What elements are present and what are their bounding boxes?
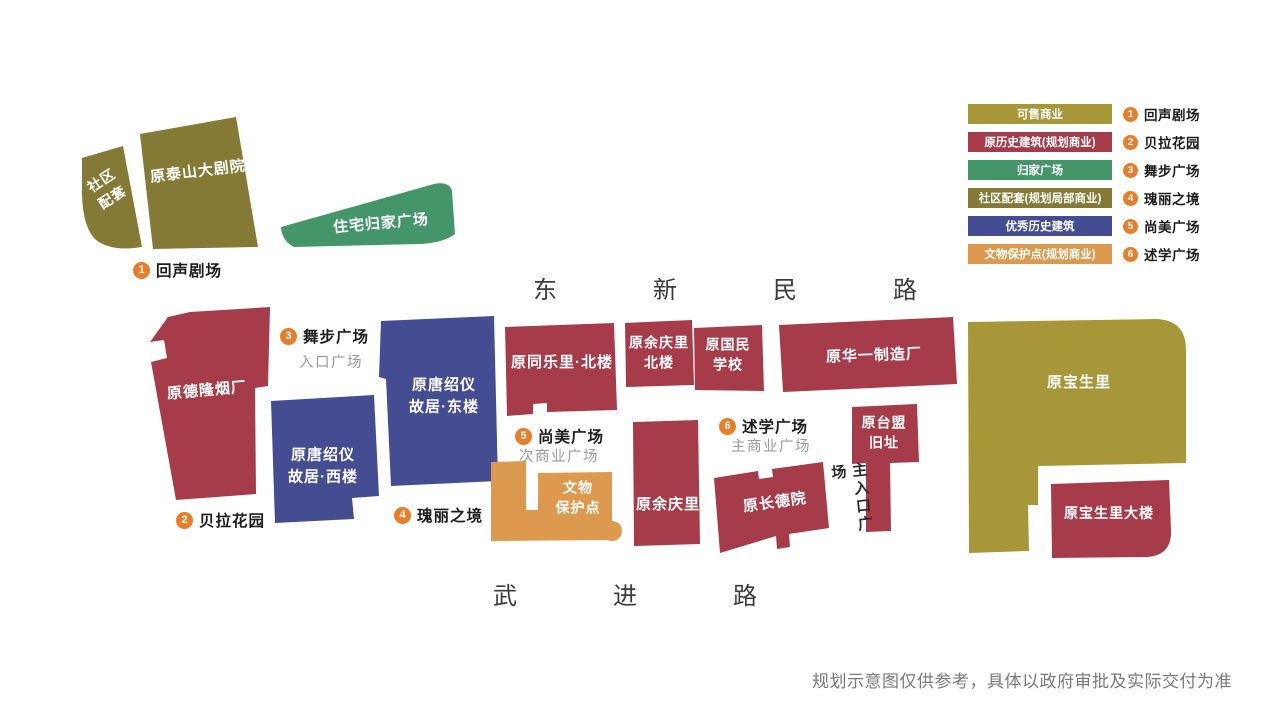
legend-categories: 可售商业 原历史建筑(规划商业) 归家广场 社区配套(规划局部商业) 优秀历史建… bbox=[968, 104, 1112, 272]
marker-5-label: 尚美广场 bbox=[538, 425, 604, 447]
site-plan-canvas: 社区 配套 原泰山大剧院 住宅归家广场 原德隆烟厂 原唐绍仪 故居·西楼 原唐绍… bbox=[0, 0, 1268, 714]
legend-item-2: 2 贝拉花园 bbox=[1123, 132, 1200, 152]
shape-tang-west bbox=[271, 395, 379, 523]
legend-item-6-label: 述学广场 bbox=[1144, 244, 1200, 264]
legend-item-5-badge: 5 bbox=[1123, 219, 1138, 234]
label-main-entrance-plaza: 主入口广场 bbox=[827, 461, 878, 551]
marker-1-badge: 1 bbox=[133, 262, 150, 279]
legend-item-4-label: 瑰丽之境 bbox=[1144, 188, 1200, 208]
legend-category-relic: 文物保护点(规划商业) bbox=[968, 244, 1112, 264]
marker-4-label: 瑰丽之境 bbox=[417, 504, 483, 526]
shape-huayi-factory bbox=[779, 317, 957, 392]
legend-item-5-label: 尚美广场 bbox=[1144, 216, 1200, 236]
shape-tongleli-north bbox=[505, 323, 617, 416]
road-name-dongxinmin: 东新民路 bbox=[533, 270, 1013, 305]
legend-item-4-badge: 4 bbox=[1123, 191, 1138, 206]
legend-item-1: 1 回声剧场 bbox=[1123, 104, 1200, 124]
legend-category-community: 社区配套(规划局部商业) bbox=[968, 188, 1112, 208]
legend-item-4: 4 瑰丽之境 bbox=[1123, 188, 1200, 208]
legend-item-1-badge: 1 bbox=[1123, 107, 1138, 122]
legend-item-1-label: 回声剧场 bbox=[1144, 104, 1200, 124]
marker-3-label: 舞步广场 bbox=[303, 325, 369, 347]
marker-3-sublabel: 入口广场 bbox=[299, 351, 363, 372]
shape-taishan-theatre bbox=[140, 117, 258, 249]
shape-baoshengli-tower bbox=[1051, 480, 1171, 558]
marker-guili-realm: 4 瑰丽之境 bbox=[394, 504, 483, 526]
legend-item-3: 3 舞步广场 bbox=[1123, 160, 1200, 180]
legend-category-heritage: 优秀历史建筑 bbox=[968, 216, 1112, 236]
legend-category-historic: 原历史建筑(规划商业) bbox=[968, 132, 1112, 152]
shape-changdeyuan bbox=[714, 462, 829, 553]
legend-item-3-label: 舞步广场 bbox=[1144, 160, 1200, 180]
shape-tang-east bbox=[379, 316, 498, 486]
legend-item-6: 6 述学广场 bbox=[1123, 244, 1200, 264]
marker-2-badge: 2 bbox=[176, 512, 193, 529]
marker-5-sublabel: 次商业广场 bbox=[519, 445, 599, 466]
shape-community-annex bbox=[82, 146, 142, 248]
road-name-wujin: 武进路 bbox=[493, 576, 853, 611]
legend-category-homecoming: 归家广场 bbox=[968, 160, 1112, 180]
shape-homecoming-plaza bbox=[281, 183, 455, 247]
marker-6-badge: 6 bbox=[719, 418, 736, 435]
legend-item-6-badge: 6 bbox=[1123, 247, 1138, 262]
marker-4-badge: 4 bbox=[394, 507, 411, 524]
legend-item-2-badge: 2 bbox=[1123, 135, 1138, 150]
legend-item-2-label: 贝拉花园 bbox=[1144, 132, 1200, 152]
shape-relic-point bbox=[491, 461, 612, 541]
legend-category-saleable: 可售商业 bbox=[968, 104, 1112, 124]
marker-3-badge: 3 bbox=[280, 328, 297, 345]
marker-bella-garden: 2 贝拉花园 bbox=[176, 509, 265, 531]
marker-6-label: 述学广场 bbox=[742, 415, 808, 437]
shape-yuqingli bbox=[633, 420, 700, 546]
marker-5-badge: 5 bbox=[515, 428, 532, 445]
marker-shuxue-plaza: 6 述学广场 bbox=[719, 415, 808, 437]
legend-numbered-list: 1 回声剧场 2 贝拉花园 3 舞步广场 4 瑰丽之境 5 尚美广场 6 述学广… bbox=[1123, 104, 1200, 272]
shape-delong-tobacco bbox=[150, 307, 270, 500]
marker-2-label: 贝拉花园 bbox=[199, 509, 265, 531]
shape-guomin-school bbox=[694, 325, 764, 391]
shape-relic-point-knob bbox=[602, 521, 622, 541]
shape-yuqingli-north bbox=[625, 320, 694, 387]
marker-dance-plaza: 3 舞步广场 bbox=[280, 325, 369, 347]
marker-shangmei-plaza: 5 尚美广场 bbox=[515, 425, 604, 447]
marker-echo-theatre: 1 回声剧场 bbox=[133, 259, 222, 281]
marker-6-sublabel: 主商业广场 bbox=[731, 435, 811, 456]
disclaimer-text: 规划示意图仅供参考，具体以政府审批及实际交付为准 bbox=[812, 667, 1232, 692]
legend-item-5: 5 尚美广场 bbox=[1123, 216, 1200, 236]
marker-1-label: 回声剧场 bbox=[156, 259, 222, 281]
legend-item-3-badge: 3 bbox=[1123, 163, 1138, 178]
